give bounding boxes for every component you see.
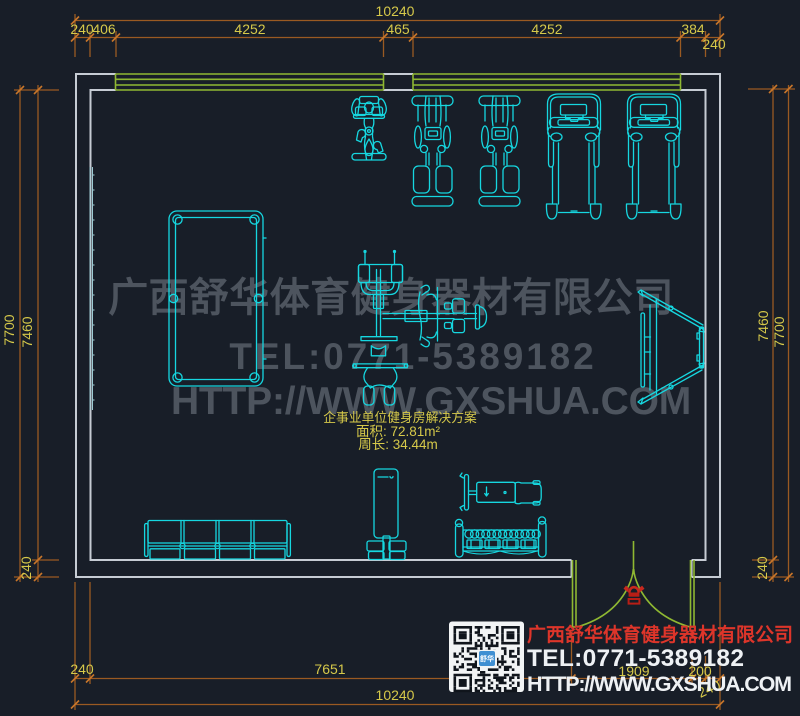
svg-text:240: 240 — [754, 556, 770, 580]
svg-text:240: 240 — [18, 556, 34, 580]
svg-text:4252: 4252 — [531, 21, 562, 37]
svg-text:406: 406 — [92, 21, 116, 37]
svg-text:周长: 34.44m: 周长: 34.44m — [358, 437, 438, 452]
svg-text:7460: 7460 — [19, 316, 35, 347]
svg-text:240: 240 — [702, 36, 726, 52]
svg-text:TEL:0771-5389182: TEL:0771-5389182 — [527, 645, 744, 672]
svg-text:企事业单位健身房解决方案: 企事业单位健身房解决方案 — [323, 410, 477, 425]
svg-text:7700: 7700 — [1, 314, 17, 345]
svg-text:465: 465 — [386, 21, 410, 37]
svg-text:TEL:0771-5389182: TEL:0771-5389182 — [229, 336, 596, 377]
svg-text:7460: 7460 — [755, 310, 771, 341]
svg-text:7651: 7651 — [314, 661, 345, 677]
svg-text:240: 240 — [70, 21, 94, 37]
svg-text:舒华: 舒华 — [480, 654, 494, 663]
svg-text:7700: 7700 — [771, 316, 787, 347]
svg-text:10240: 10240 — [376, 3, 415, 19]
svg-text:10240: 10240 — [376, 687, 415, 703]
svg-text:240: 240 — [70, 661, 94, 677]
svg-text:384: 384 — [681, 21, 705, 37]
svg-text:HTTP://WWW.GXSHUA.COM: HTTP://WWW.GXSHUA.COM — [527, 672, 791, 696]
svg-text:广西舒华体育健身器材有限公司: 广西舒华体育健身器材有限公司 — [527, 623, 793, 646]
svg-text:4252: 4252 — [234, 21, 265, 37]
